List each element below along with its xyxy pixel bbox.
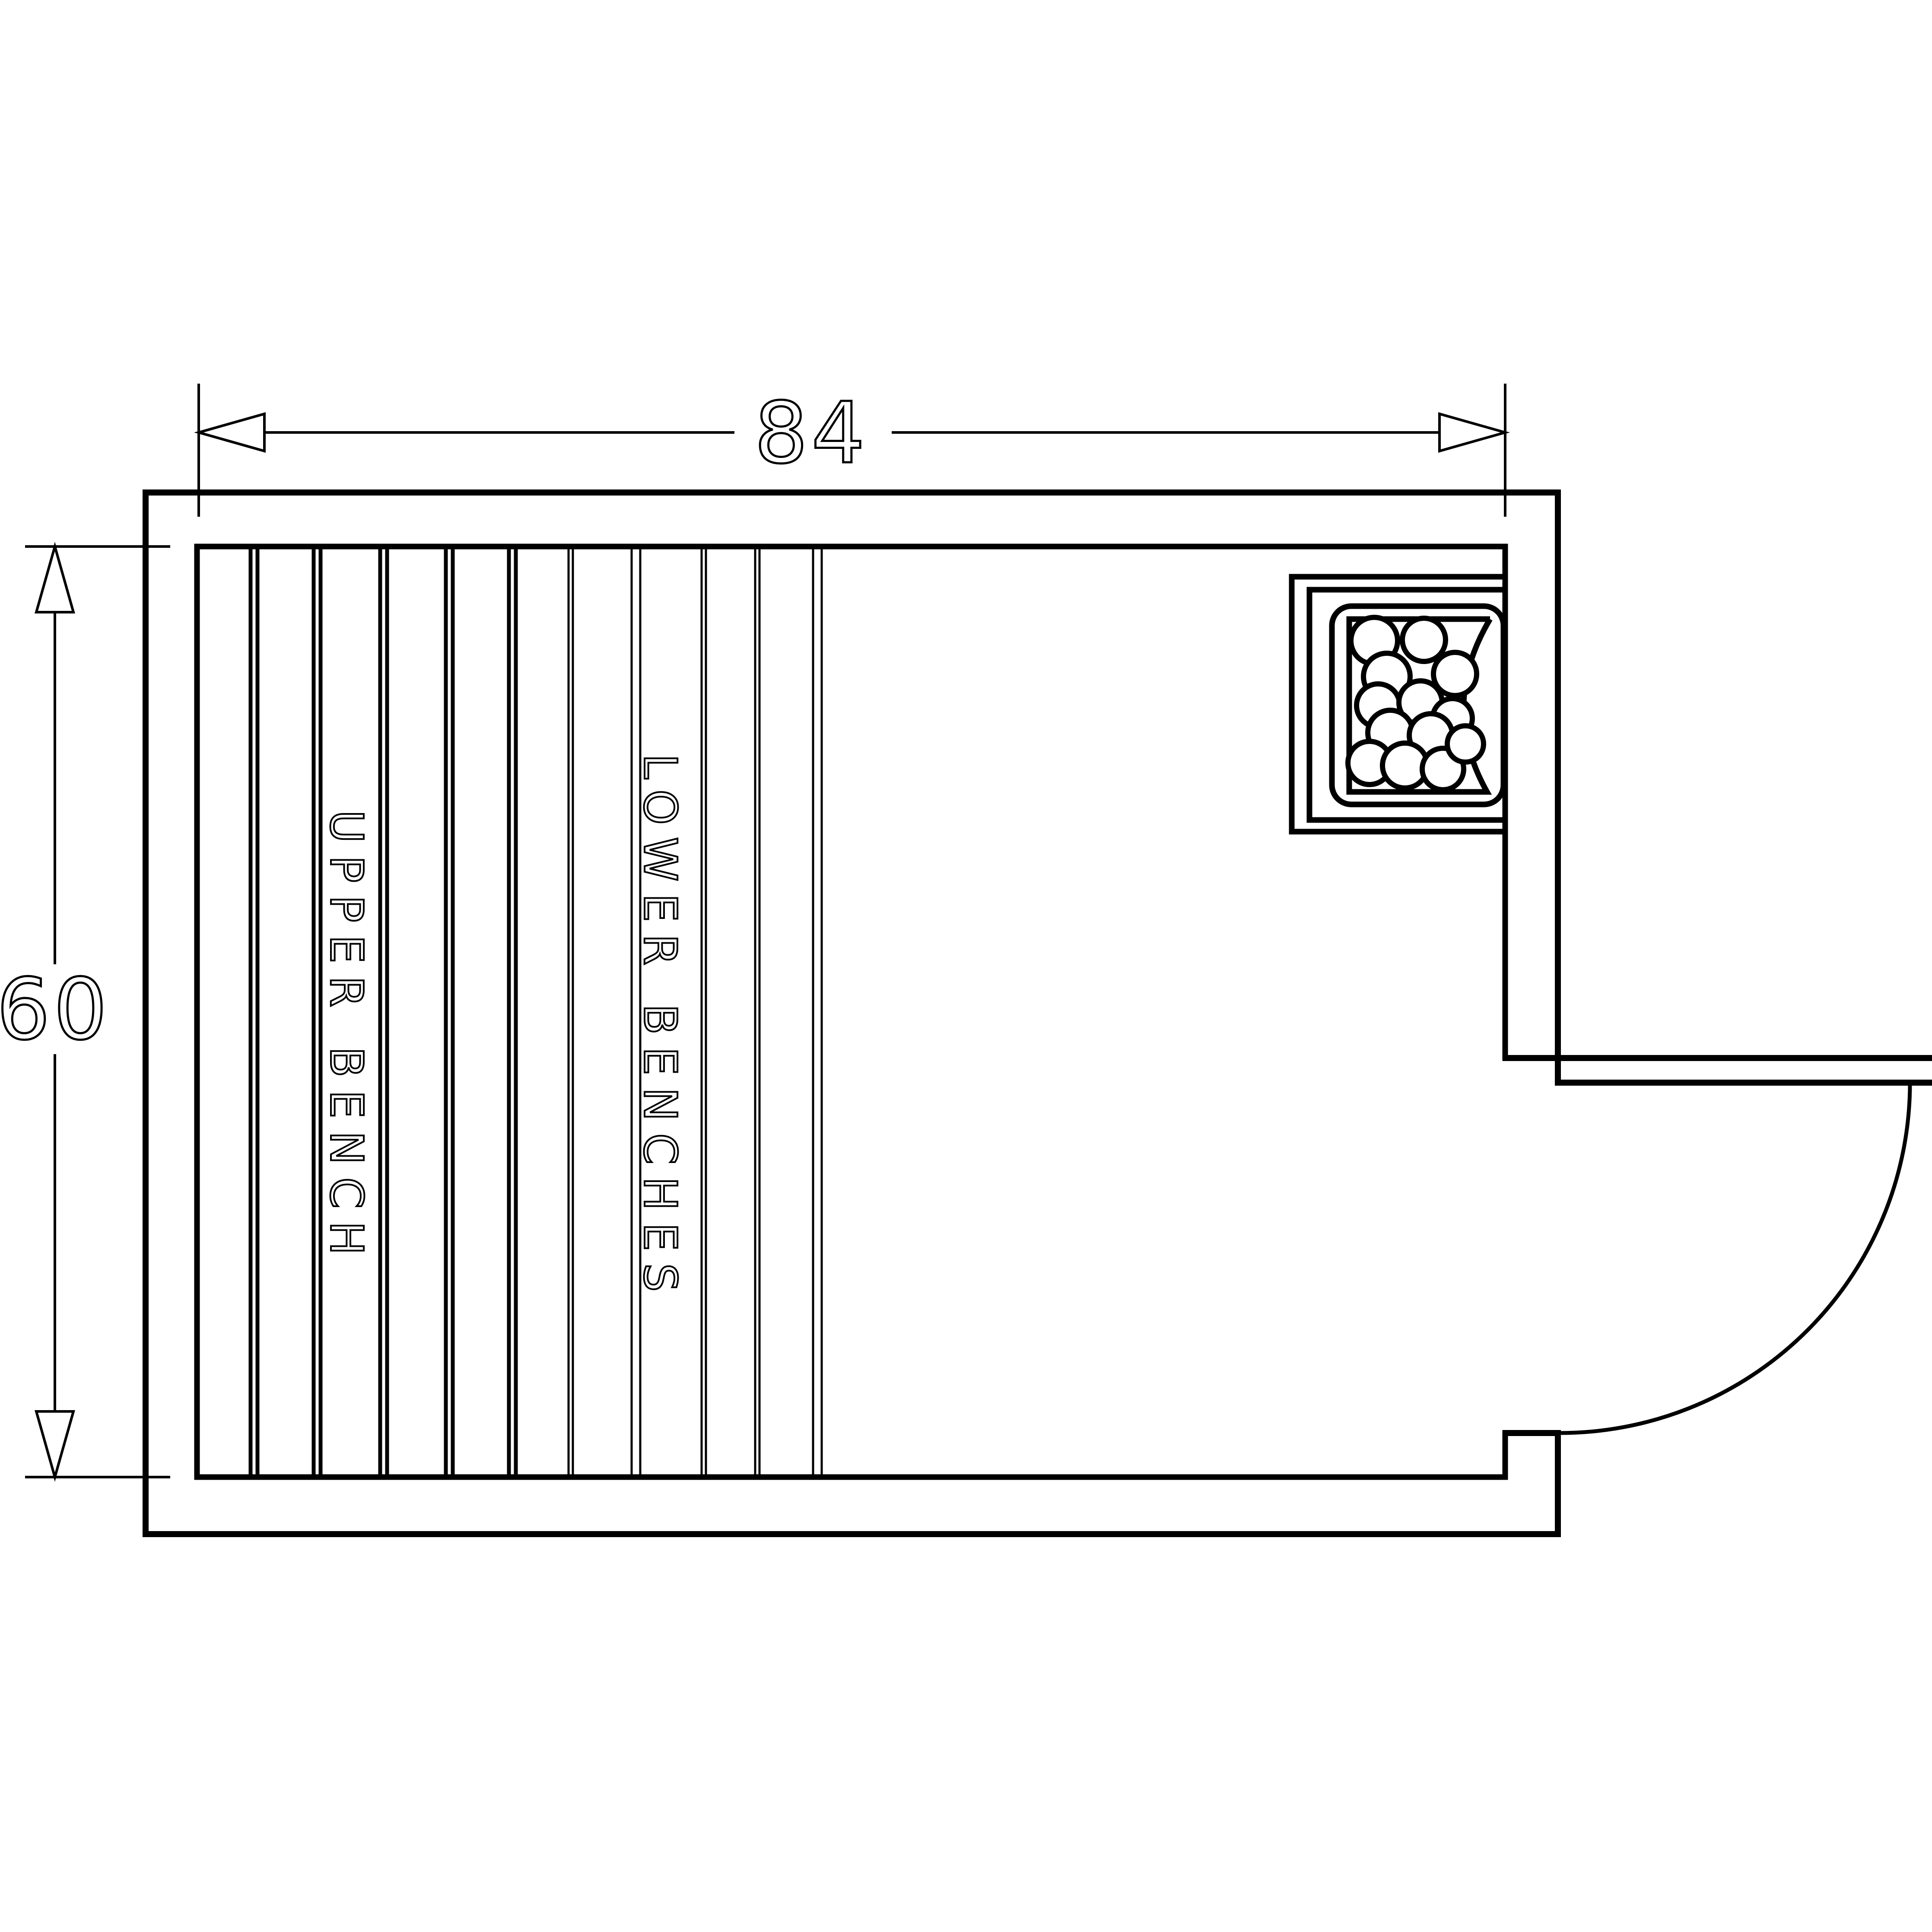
floor-plan-page: UPPER BENCH LOWER BENCHES: [0, 0, 1932, 1932]
arrowhead-up-icon: [36, 547, 73, 612]
lower-benches-label: LOWER BENCHES: [634, 754, 686, 1292]
heater-rock: [1402, 618, 1446, 661]
arrowhead-right-icon: [1439, 414, 1505, 451]
door: [1503, 1058, 1932, 1433]
arrowhead-down-icon: [36, 1411, 73, 1477]
heater-rock: [1447, 726, 1484, 762]
sauna-floor-plan-drawing: UPPER BENCH LOWER BENCHES: [0, 0, 1932, 1932]
arrowhead-left-icon: [199, 414, 264, 451]
upper-bench-label: UPPER BENCH: [320, 810, 373, 1255]
heater: [1292, 577, 1505, 832]
heater-rocks: [1348, 617, 1484, 790]
dimension-width-84: 84: [199, 384, 1505, 517]
dimension-width-text: 84: [754, 384, 868, 482]
lower-bench-planks: [569, 547, 822, 1477]
dimension-height-text: 60: [0, 960, 111, 1058]
door-swing-arc: [1560, 1083, 1910, 1433]
upper-bench-planks: [251, 547, 516, 1477]
